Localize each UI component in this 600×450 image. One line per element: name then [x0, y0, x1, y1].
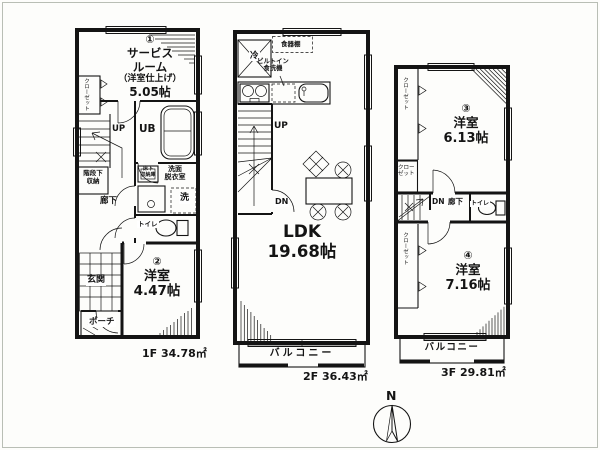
floor2-dishwasher-label: ビルトイン 食洗機 — [250, 58, 296, 73]
floor1-area-label: 1F 34.78㎡ — [142, 348, 207, 360]
floor3-closet-mid-label: クローゼット — [398, 165, 417, 178]
room2-size: 4.47帖 — [120, 284, 194, 300]
floor1-entrance-label: 玄関 — [86, 276, 106, 286]
floor3-balcony-label: バルコニー — [402, 342, 502, 353]
room1-size: 5.05帖 — [104, 85, 196, 99]
floor2-dishwasher-leader — [280, 76, 284, 86]
ldk-name: LDK — [246, 222, 358, 242]
floor2-ldk-title: LDK 19.68帖 — [246, 222, 358, 262]
compass-icon — [374, 405, 411, 443]
floor2-stove-icon — [243, 86, 267, 103]
floor3-slope-hatch-bottom — [477, 307, 504, 335]
floor3-closet-low-label: クローゼット — [401, 232, 407, 265]
floor2-dining-table-icon — [306, 178, 352, 204]
floor2-sink-icon — [299, 84, 328, 102]
floor1-porch-label: ポーチ — [88, 318, 116, 327]
floor1-slope-hatch-bottom — [160, 308, 192, 335]
floor2-walls — [235, 32, 368, 343]
floor2-dn-label: DN — [274, 198, 289, 207]
floor1-up-label: UP — [112, 125, 125, 134]
floor1-closet-label: クローゼット — [82, 78, 88, 111]
floor3-dn-label: DN — [431, 198, 446, 206]
floor2-chair-icons — [310, 162, 351, 220]
floor1-understair-storage-label: 階段下 収納 — [78, 170, 108, 185]
floor2-cupboard-label: 食器棚 — [281, 41, 301, 48]
room2-number: ② — [120, 256, 194, 269]
floor3-closet-top-label: クローゼット — [401, 77, 407, 110]
room1-name-line2: ルーム — [104, 61, 196, 75]
floor2-balcony-label: バルコニー — [244, 348, 360, 360]
floor1-vanity-icon — [138, 186, 165, 212]
ldk-size: 19.68帖 — [246, 242, 358, 261]
floor1-washroom-door-arc — [115, 186, 135, 206]
floor2-dishwasher-box — [272, 84, 295, 102]
room3-size: 6.13帖 — [424, 131, 508, 146]
floor1-ub-label: UB — [139, 124, 156, 135]
floor-plan-page: ① サービス ルーム （洋室仕上げ） 5.05帖 クローゼット UP UB 階段… — [0, 0, 600, 450]
floor3-room4-title: ④ 洋室 7.16帖 — [426, 250, 510, 293]
room1-name-line1: サービス — [104, 47, 196, 61]
floor1-room1-title: ① サービス ルーム （洋室仕上げ） 5.05帖 — [104, 34, 196, 99]
room3-name: 洋室 — [424, 116, 508, 131]
floor3-slope-hatch-top — [472, 69, 506, 103]
room1-name-line3: （洋室仕上げ） — [104, 74, 196, 85]
room4-size: 7.16帖 — [426, 278, 510, 293]
floor2-up-label: UP — [274, 122, 288, 132]
floor1-washroom-label: 洗面 脱衣室 — [158, 165, 192, 182]
floor3-toilet-label: トイレ — [470, 201, 490, 207]
floor3-hallway-label: 廊下 — [447, 198, 464, 206]
floor2-ceiling-light-icon — [303, 151, 329, 177]
floor1-room2-title: ② 洋室 4.47帖 — [120, 256, 194, 300]
floor3-door-arcs — [428, 170, 455, 244]
floor1-toilet-label: トイレ — [137, 221, 159, 228]
floor1-underfloor-storage-label: 床下 収納庫 — [138, 167, 158, 179]
floor1-washer-label: 洗 — [179, 194, 190, 204]
room2-name: 洋室 — [120, 269, 194, 284]
floor3-room3-title: ③ 洋室 6.13帖 — [424, 103, 508, 146]
compass-north-label: N — [386, 389, 396, 403]
floor2-windows — [232, 29, 372, 348]
floor2-area-label: 2F 36.43㎡ — [303, 371, 368, 383]
floor3-stairs-icon — [396, 195, 430, 222]
floor3-area-label: 3F 29.81㎡ — [441, 367, 506, 379]
floor1-hallway-label: 廊下 — [100, 197, 117, 206]
floor2-slope-hatch — [241, 301, 271, 341]
room4-name: 洋室 — [426, 263, 510, 278]
